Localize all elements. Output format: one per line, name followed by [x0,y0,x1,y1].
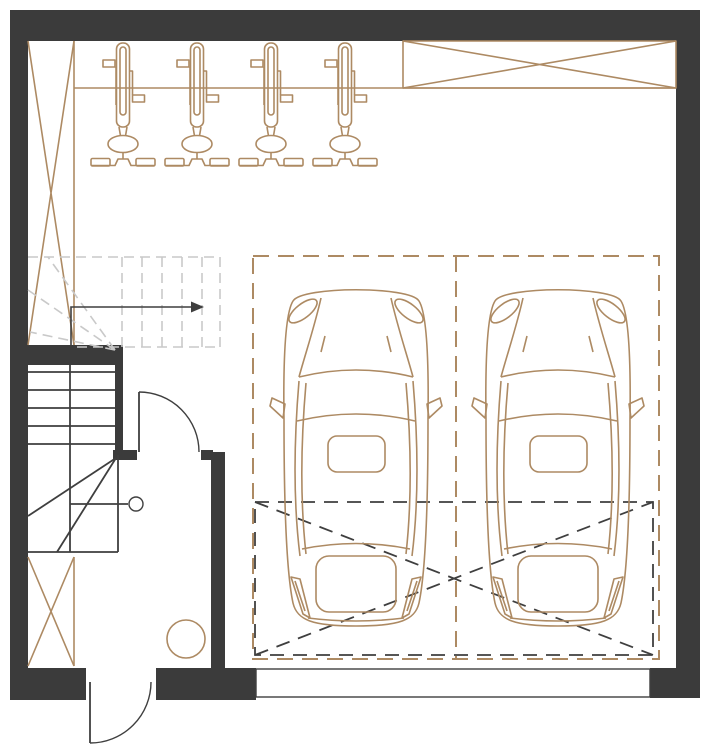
bike-rack-row [91,43,377,166]
interior-walls [28,345,225,670]
winder-treads [28,458,116,552]
stair-treads [28,372,115,444]
car-2 [472,290,644,626]
floor-plan-canvas [0,0,720,755]
bike-rack-4 [313,43,377,166]
door-swing-arc [90,682,151,743]
wall-right [676,10,700,698]
newel-post [129,497,143,511]
car-1 [270,290,442,626]
garage-door [256,669,650,697]
floor-plan-drawing [0,0,720,755]
bike-rack-1 [91,43,155,166]
column-cross-top-right [403,41,676,88]
wall-bottom-mid [156,668,256,700]
top-header-zone [74,41,676,88]
lobby-garage-door [139,392,199,452]
door-swing-arc [139,392,199,452]
wall-bottom-left [10,668,86,700]
column-cross-lower-left [28,557,74,666]
wall-top [10,10,700,41]
stair-direction-arrow [71,302,204,346]
wall-bottom-right [650,668,700,698]
entrance-door [90,682,151,743]
vestibule-wall [211,452,225,670]
floor-drain [167,620,205,658]
crossed-reserved-area [255,502,653,655]
bike-rack-2 [165,43,229,166]
wall-left [10,10,28,700]
reserved-area-cross [255,502,653,655]
bike-rack-3 [239,43,303,166]
column-cross-upper-left [28,41,74,345]
stair-wall-right [115,345,123,455]
